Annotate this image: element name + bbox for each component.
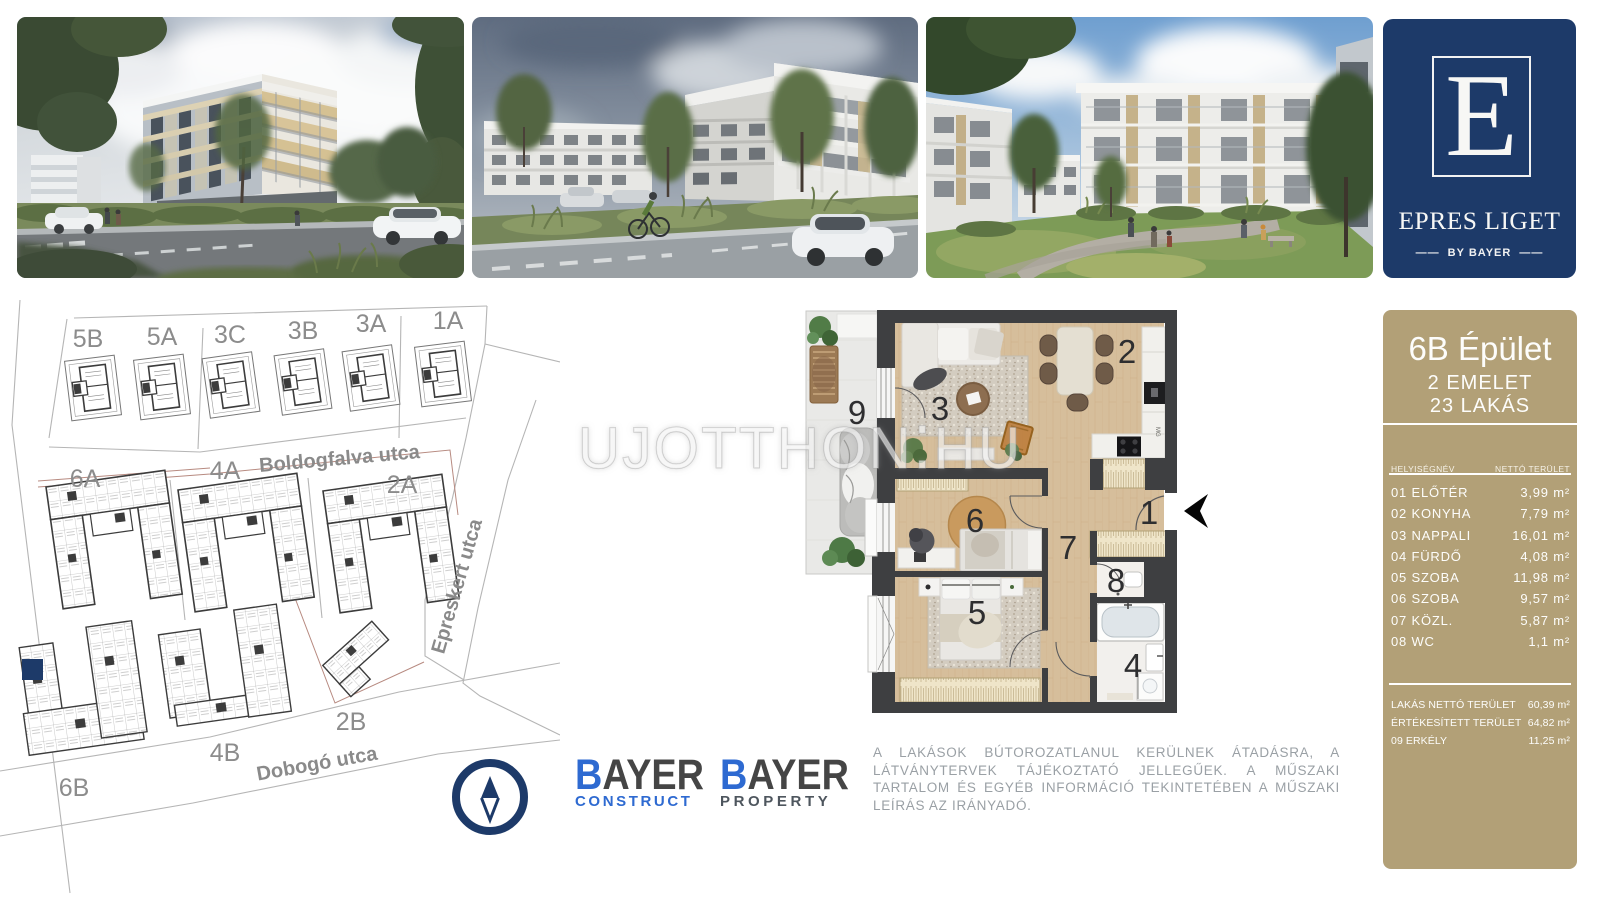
svg-text:1: 1	[1140, 494, 1158, 531]
svg-text:MG: MG	[1154, 427, 1160, 437]
svg-text:6A: 6A	[70, 465, 101, 493]
svg-text:2B: 2B	[336, 708, 367, 736]
svg-text:4A: 4A	[210, 457, 241, 485]
svg-text:5A: 5A	[147, 323, 178, 351]
svg-text:6B: 6B	[59, 774, 90, 802]
svg-text:4: 4	[1124, 647, 1142, 684]
svg-text:5: 5	[968, 594, 986, 631]
svg-text:6: 6	[966, 502, 984, 539]
svg-text:2A: 2A	[387, 471, 418, 499]
svg-text:UJOTTHON⁚HU: UJOTTHON⁚HU	[578, 416, 1022, 481]
svg-text:Dobogó utca: Dobogó utca	[255, 742, 380, 785]
svg-text:3A: 3A	[356, 310, 387, 338]
svg-text:5B: 5B	[73, 325, 104, 353]
svg-text:7: 7	[1059, 529, 1077, 566]
svg-text:4B: 4B	[210, 739, 241, 767]
svg-text:2: 2	[1118, 333, 1136, 370]
svg-text:3B: 3B	[288, 317, 319, 345]
svg-text:3C: 3C	[214, 321, 246, 349]
svg-text:8: 8	[1107, 562, 1125, 599]
svg-text:1A: 1A	[433, 307, 464, 335]
